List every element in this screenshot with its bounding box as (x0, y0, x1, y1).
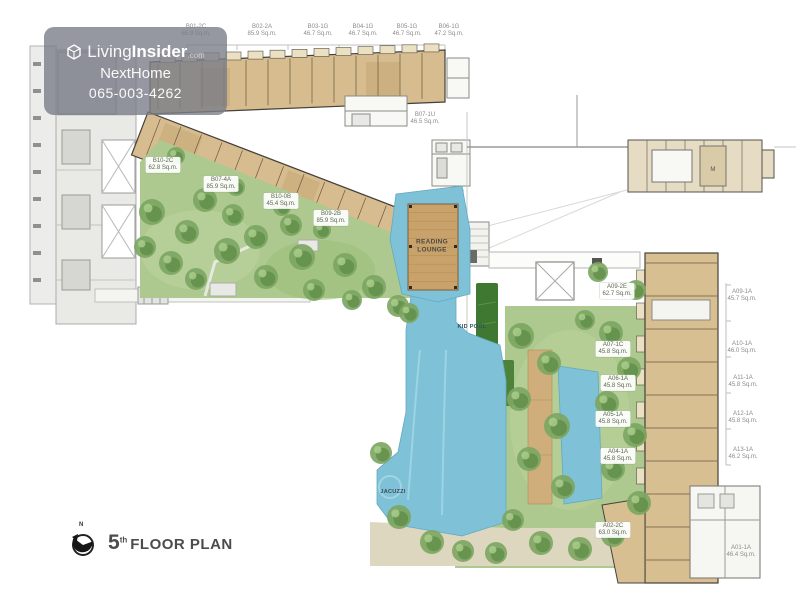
unit-label-b10-2c: B10-2C62.8 Sq.m. (145, 157, 180, 173)
unit-label-a05-1a: A05-1A45.8 Sq.m. (595, 411, 630, 427)
unit-label-b02-2a: B02-2A85.9 Sq.m. (247, 24, 276, 38)
floor-plan-page: LivingInsider.com NextHome 065-003-4262 … (0, 0, 800, 600)
unit-label-a10-1a: A10-1A46.0 Sq.m. (727, 341, 756, 355)
kid-pool-label: KID POOL (458, 324, 487, 330)
unit-label-b07-4a: B07-4A85.9 Sq.m. (203, 176, 238, 192)
unit-label-b07-1u: B07-1U46.5 Sq.m. (410, 112, 439, 126)
page-title: 5thFLOOR PLAN (108, 531, 233, 555)
floor-ordinal: th (120, 536, 128, 545)
floor-plan-label: FLOOR PLAN (130, 536, 233, 553)
floor-number: 5 (108, 531, 120, 554)
unit-label-b04-1g: B04-1G46.7 Sq.m. (348, 24, 377, 38)
living-insider-logo-icon (66, 44, 82, 60)
unit-label-a11-1a: A11-1A45.8 Sq.m. (728, 375, 757, 389)
reading-lounge-label: READINGLOUNGE (416, 239, 448, 256)
watermark-brand-prefix: Living (87, 42, 131, 62)
watermark-brand-suffix: Insider (132, 42, 188, 62)
unit-label-a09-2e: A09-2E62.7 Sq.m. (599, 283, 634, 299)
watermark-subtitle: NextHome (100, 65, 171, 82)
unit-label-b09-2b: B09-2B85.9 Sq.m. (313, 210, 348, 226)
unit-label-b05-1g: B05-1G46.7 Sq.m. (392, 24, 421, 38)
unit-label-b06-1g: B06-1G47.2 Sq.m. (434, 24, 463, 38)
unit-label-a06-1a: A06-1A45.8 Sq.m. (600, 375, 635, 391)
unit-label-a07-1c: A07-1C45.8 Sq.m. (595, 341, 630, 357)
northeast-building (628, 140, 796, 192)
watermark: LivingInsider.com NextHome 065-003-4262 (44, 27, 227, 115)
compass-north-label: N (79, 522, 83, 528)
watermark-tld: .com (187, 51, 204, 60)
compass-icon (70, 531, 96, 557)
unit-label-a02-2c: A02-2C63.0 Sq.m. (595, 522, 630, 538)
unit-label-a09-1a: A09-1A45.7 Sq.m. (727, 289, 756, 303)
unit-label-a04-1a: A04-1A45.8 Sq.m. (600, 448, 635, 464)
unit-label-a13-1a: A13-1A46.2 Sq.m. (728, 447, 757, 461)
unit-label-b10-0b: B10-0B45.4 Sq.m. (263, 193, 298, 209)
unit-label-a01-1a: A01-1A46.4 Sq.m. (726, 545, 755, 559)
watermark-phone: 065-003-4262 (89, 85, 182, 101)
unit-label-a12-1a: A12-1A45.8 Sq.m. (728, 411, 757, 425)
jacuzzi-label: JACUZZI (380, 489, 405, 495)
mech-room-label: M (710, 167, 715, 173)
unit-label-b03-1g: B03-1G46.7 Sq.m. (303, 24, 332, 38)
watermark-brand: LivingInsider.com (66, 42, 205, 62)
